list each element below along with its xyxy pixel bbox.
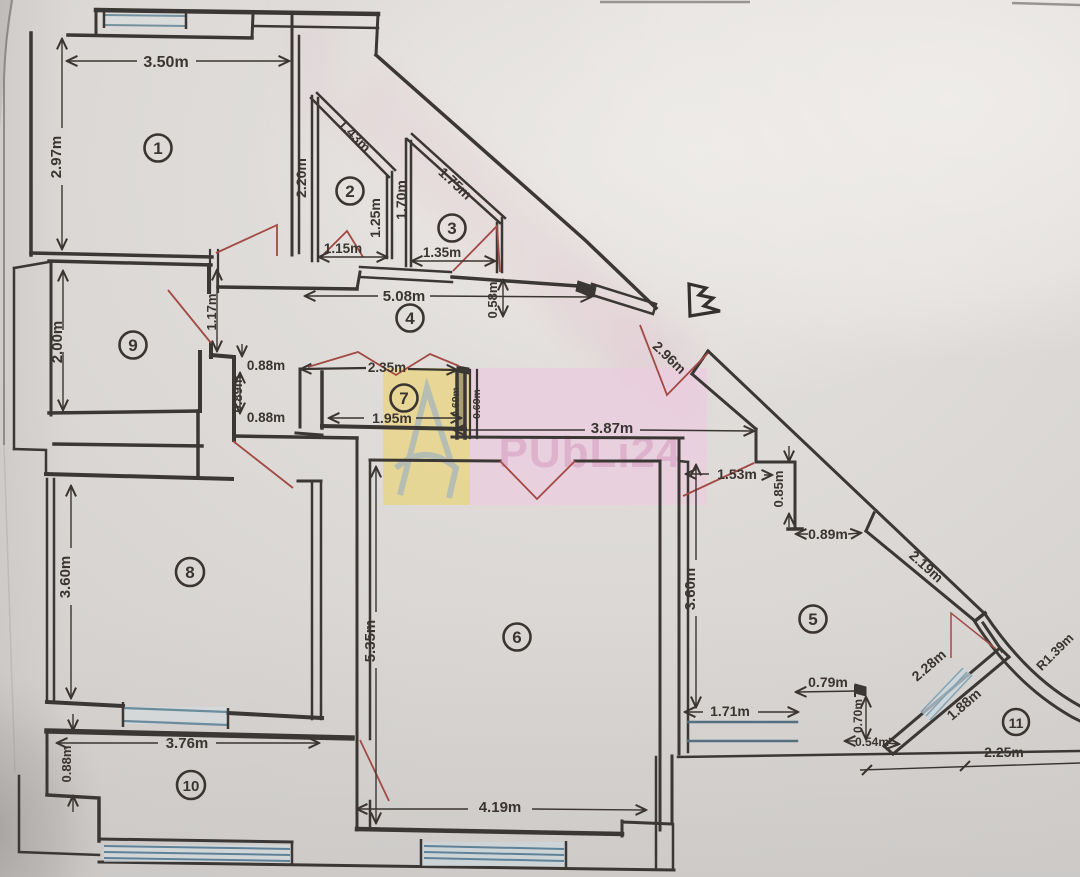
svg-text:2.35m: 2.35m xyxy=(368,360,406,375)
svg-text:0.85m: 0.85m xyxy=(771,471,786,508)
svg-text:0.88m: 0.88m xyxy=(247,358,285,373)
svg-text:0.79m: 0.79m xyxy=(808,674,848,690)
svg-text:5.08m: 5.08m xyxy=(383,288,426,305)
svg-text:1.17m: 1.17m xyxy=(204,294,219,331)
svg-text:3.60m: 3.60m xyxy=(682,568,699,611)
svg-text:3: 3 xyxy=(447,219,456,238)
svg-text:0.69m: 0.69m xyxy=(471,389,483,419)
svg-text:1.25m: 1.25m xyxy=(367,198,383,238)
svg-text:4: 4 xyxy=(405,309,415,328)
svg-text:7: 7 xyxy=(399,389,408,408)
svg-text:2.20m: 2.20m xyxy=(293,158,309,198)
svg-text:1.71m: 1.71m xyxy=(710,703,750,719)
svg-text:5.35m: 5.35m xyxy=(362,620,379,663)
svg-text:1.70m: 1.70m xyxy=(393,180,409,220)
svg-text:0.88m: 0.88m xyxy=(59,746,74,783)
svg-text:1.53m: 1.53m xyxy=(717,466,757,482)
svg-text:2: 2 xyxy=(345,182,354,201)
svg-text:0.54m: 0.54m xyxy=(855,735,889,749)
svg-text:0.69m: 0.69m xyxy=(450,387,462,417)
svg-text:3.60m: 3.60m xyxy=(57,556,74,599)
svg-text:3.87m: 3.87m xyxy=(591,420,634,437)
svg-text:4.19m: 4.19m xyxy=(479,799,522,816)
svg-text:0.58m: 0.58m xyxy=(485,282,500,319)
svg-text:10: 10 xyxy=(183,778,200,795)
svg-text:3.50m: 3.50m xyxy=(143,54,188,71)
svg-text:0.89m: 0.89m xyxy=(230,376,245,413)
svg-text:6: 6 xyxy=(512,628,521,647)
svg-text:2.00m: 2.00m xyxy=(49,321,66,364)
svg-text:0.70m: 0.70m xyxy=(851,699,865,733)
svg-text:0.89m: 0.89m xyxy=(808,526,848,542)
svg-text:2.25m: 2.25m xyxy=(984,744,1024,760)
svg-text:9: 9 xyxy=(128,336,137,355)
svg-text:5: 5 xyxy=(808,610,817,629)
svg-text:2.97m: 2.97m xyxy=(48,136,65,179)
svg-text:1.35m: 1.35m xyxy=(423,245,461,260)
svg-text:8: 8 xyxy=(185,563,194,582)
svg-text:1.15m: 1.15m xyxy=(324,241,362,256)
svg-text:3.76m: 3.76m xyxy=(166,735,209,752)
svg-text:1: 1 xyxy=(153,139,162,158)
svg-text:11: 11 xyxy=(1009,715,1024,731)
svg-text:0.88m: 0.88m xyxy=(247,410,285,425)
